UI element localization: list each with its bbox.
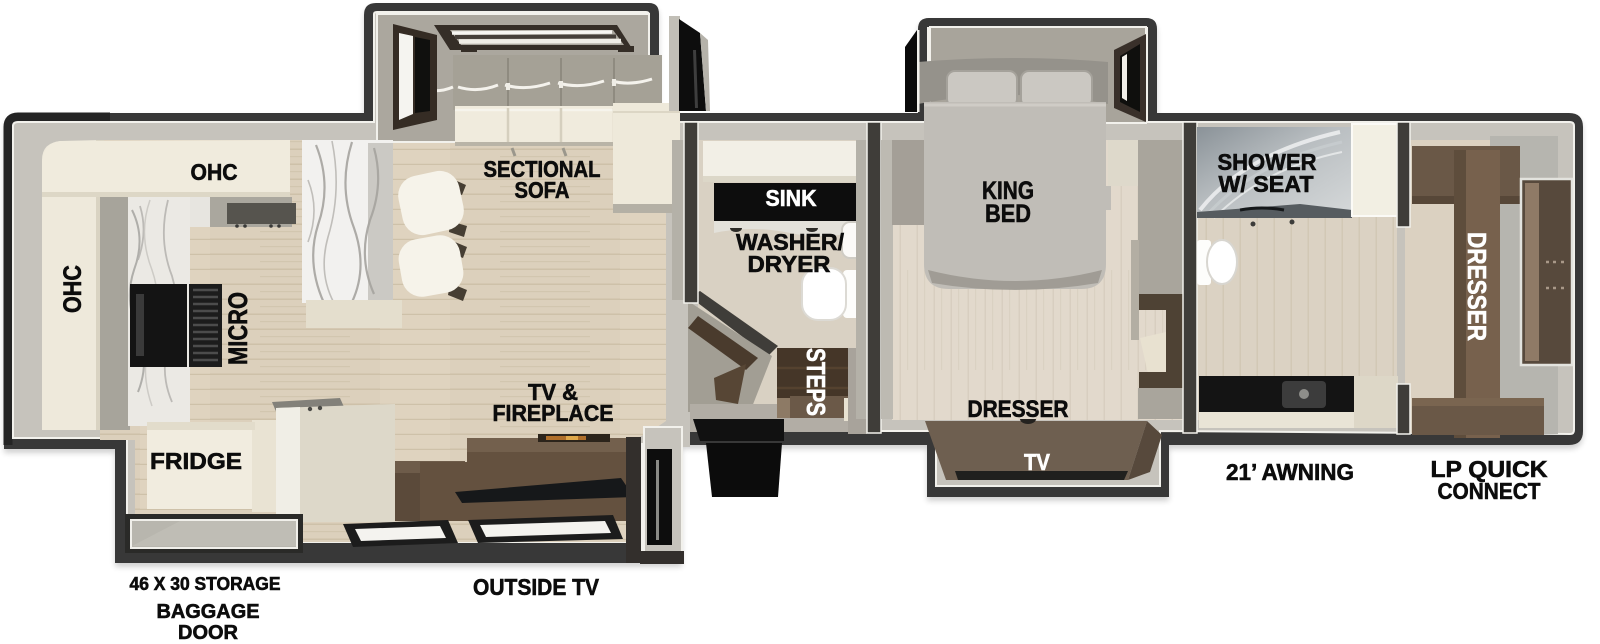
svg-text:OHC: OHC bbox=[191, 159, 238, 185]
svg-text:OHC: OHC bbox=[59, 265, 87, 313]
svg-text:OUTSIDE TV: OUTSIDE TV bbox=[473, 574, 600, 600]
svg-text:MICRO: MICRO bbox=[223, 292, 253, 365]
svg-text:SINK: SINK bbox=[766, 185, 817, 211]
svg-text:BAGGAGE: BAGGAGE bbox=[157, 601, 260, 623]
svg-text:FRIDGE: FRIDGE bbox=[150, 448, 242, 474]
svg-text:46 X 30 STORAGE: 46 X 30 STORAGE bbox=[130, 574, 281, 594]
svg-text:FIREPLACE: FIREPLACE bbox=[493, 400, 614, 426]
svg-text:DRYER: DRYER bbox=[748, 251, 831, 277]
svg-text:21’ AWNING: 21’ AWNING bbox=[1226, 459, 1354, 485]
svg-text:BED: BED bbox=[985, 200, 1031, 228]
svg-text:SOFA: SOFA bbox=[515, 177, 570, 203]
svg-text:DOOR: DOOR bbox=[178, 622, 239, 644]
svg-text:STEPS: STEPS bbox=[801, 348, 831, 416]
svg-text:W/ SEAT: W/ SEAT bbox=[1219, 171, 1314, 197]
svg-text:CONNECT: CONNECT bbox=[1438, 478, 1541, 504]
svg-text:DRESSER: DRESSER bbox=[1462, 232, 1492, 341]
svg-text:DRESSER: DRESSER bbox=[968, 396, 1069, 423]
svg-text:TV: TV bbox=[1024, 449, 1051, 475]
